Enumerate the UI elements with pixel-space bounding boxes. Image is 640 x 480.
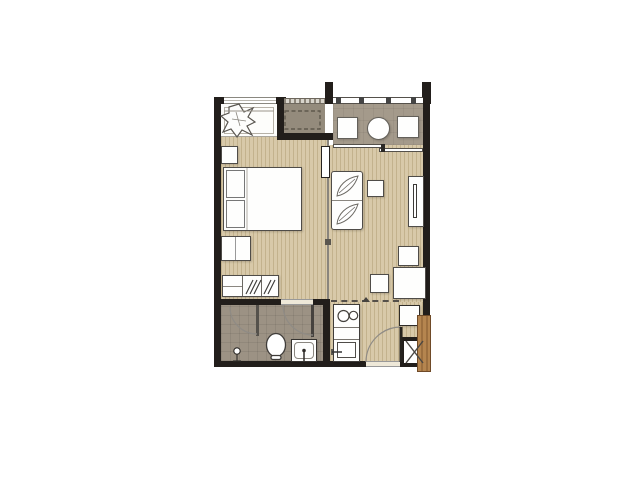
washing-machine: [367, 117, 390, 140]
bathroom-door-threshold: [281, 299, 313, 305]
closet-casework: [224, 107, 274, 134]
bedroom-window-midline: [224, 100, 276, 101]
balcony-planter-left: [337, 117, 358, 139]
sliding-door-frame-cap: [381, 144, 385, 152]
wall-top-left-cap: [214, 97, 224, 104]
entrance-threshold: [366, 361, 401, 367]
wall-bathroom-right: [323, 299, 330, 367]
floor-plan-canvas: [0, 0, 640, 480]
bathroom-door-leaf: [311, 305, 314, 337]
wall-stub-right: [422, 82, 431, 104]
railing-post: [411, 97, 416, 104]
bedside-bench: [221, 236, 251, 261]
stool: [370, 274, 389, 293]
railing-post: [336, 97, 341, 104]
sofa-cushion-divider: [332, 200, 362, 201]
sliding-door-panel: [321, 146, 330, 178]
counter-divider: [334, 339, 359, 340]
nightstand: [221, 146, 238, 164]
partition-end-post: [325, 239, 331, 245]
ac-ledge-floor: [283, 103, 325, 134]
dresser-drawer-split: [223, 286, 242, 287]
railing-post: [386, 97, 391, 104]
pillow: [226, 200, 245, 228]
wall-ac-bottom: [277, 133, 333, 140]
shower-partition: [256, 305, 259, 336]
entrance-wood-door-leaf: [417, 315, 431, 372]
wall-left: [214, 97, 221, 367]
wall-bathroom-top-left: [214, 299, 281, 305]
balcony-planter-right: [397, 116, 419, 138]
counter-divider: [334, 327, 359, 328]
ac-louver-strip: [284, 98, 326, 104]
pillow: [226, 170, 245, 198]
dresser-divider: [242, 276, 243, 296]
vanity-basin-bowl: [294, 342, 314, 359]
balcony-railing: [333, 97, 423, 104]
kitchen-sink: [337, 342, 356, 358]
stool: [398, 246, 419, 266]
dresser-divider: [261, 276, 262, 296]
side-table: [367, 180, 384, 197]
sliding-glass-door-panel: [379, 148, 423, 152]
dining-table: [393, 267, 426, 299]
bench-divider: [235, 237, 236, 260]
sliding-glass-door-panel: [333, 144, 385, 148]
television: [413, 184, 417, 218]
kitchen-ceiling-dashed-line: [331, 300, 399, 302]
wall-stub-left: [325, 82, 333, 104]
railing-post: [359, 97, 364, 104]
